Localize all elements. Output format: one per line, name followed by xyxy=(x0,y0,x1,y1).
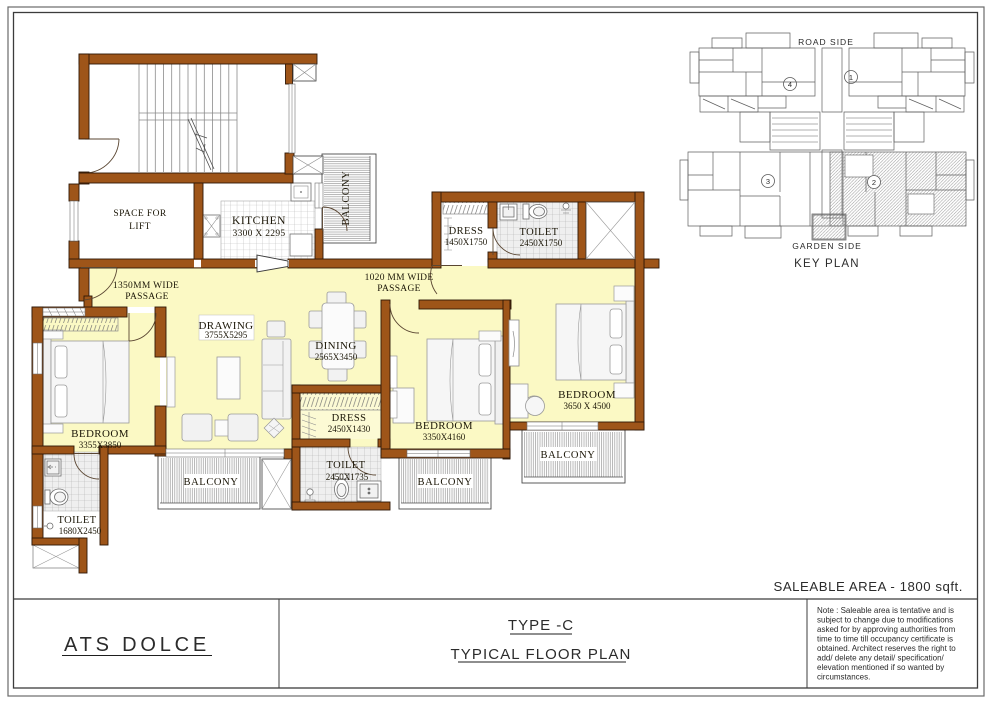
svg-text:2: 2 xyxy=(872,178,876,187)
svg-text:2450X1430: 2450X1430 xyxy=(328,424,371,434)
svg-text:DRESS: DRESS xyxy=(332,413,367,424)
svg-text:SPACE FOR: SPACE FOR xyxy=(113,209,166,219)
svg-text:add/ delete any detail/ specif: add/ delete any detail/ specification/ xyxy=(817,654,945,663)
svg-text:asked for by approving authori: asked for by approving authorities from xyxy=(817,625,956,634)
svg-text:DINING: DINING xyxy=(315,340,357,352)
svg-text:1: 1 xyxy=(849,73,853,82)
svg-text:BEDROOM: BEDROOM xyxy=(558,389,616,401)
svg-text:2450X1735: 2450X1735 xyxy=(326,472,369,482)
svg-text:1450X1750: 1450X1750 xyxy=(445,237,488,247)
svg-text:elevation mentioned if so want: elevation mentioned if so wanted by xyxy=(817,663,944,672)
svg-text:KITCHEN: KITCHEN xyxy=(232,215,286,227)
svg-text:3355X3850: 3355X3850 xyxy=(79,440,122,450)
svg-text:3755X5295: 3755X5295 xyxy=(205,330,248,340)
svg-text:obtained. Architect reserves t: obtained. Architect reserves the right t… xyxy=(817,644,956,653)
svg-text:1020 MM WIDE: 1020 MM WIDE xyxy=(365,273,434,283)
svg-text:GARDEN SIDE: GARDEN SIDE xyxy=(792,241,862,251)
svg-text:ROAD SIDE: ROAD SIDE xyxy=(798,37,854,47)
svg-text:ATS DOLCE: ATS DOLCE xyxy=(64,634,210,656)
svg-text:subject to change due to modif: subject to change due to modifications xyxy=(817,616,953,625)
svg-text:PASSAGE: PASSAGE xyxy=(125,292,168,302)
svg-text:3300 X 2295: 3300 X 2295 xyxy=(233,229,286,239)
svg-text:BALCONY: BALCONY xyxy=(184,477,239,488)
svg-text:SALEABLE AREA - 1800 sqft.: SALEABLE AREA - 1800 sqft. xyxy=(773,579,963,594)
svg-text:TOILET: TOILET xyxy=(327,460,366,471)
svg-text:2450X1750: 2450X1750 xyxy=(520,238,563,248)
svg-text:LIFT: LIFT xyxy=(129,222,151,232)
svg-text:BALCONY: BALCONY xyxy=(541,450,596,461)
svg-text:3650 X 4500: 3650 X 4500 xyxy=(564,401,611,411)
svg-text:TYPICAL FLOOR PLAN: TYPICAL FLOOR PLAN xyxy=(451,646,632,663)
svg-text:3: 3 xyxy=(766,177,770,186)
svg-text:BEDROOM: BEDROOM xyxy=(71,428,129,440)
svg-text:DRESS: DRESS xyxy=(449,226,484,237)
svg-text:TYPE -C: TYPE -C xyxy=(508,617,574,634)
svg-text:circumstances.: circumstances. xyxy=(817,673,870,682)
svg-text:TOILET: TOILET xyxy=(58,515,97,526)
svg-text:3350X4160: 3350X4160 xyxy=(423,432,466,442)
svg-text:TOILET: TOILET xyxy=(520,227,559,238)
svg-text:PASSAGE: PASSAGE xyxy=(377,284,420,294)
svg-text:1350MM WIDE: 1350MM WIDE xyxy=(113,281,179,291)
svg-text:Note : Saleable area is tentat: Note : Saleable area is tentative and is xyxy=(817,606,954,615)
svg-text:BEDROOM: BEDROOM xyxy=(415,420,473,432)
svg-text:KEY PLAN: KEY PLAN xyxy=(794,258,860,270)
svg-text:2565X3450: 2565X3450 xyxy=(315,352,358,362)
svg-text:time to time till occupancy ce: time to time till occupancy certificate … xyxy=(817,635,953,644)
svg-text:4: 4 xyxy=(788,80,792,89)
svg-text:1680X2450: 1680X2450 xyxy=(59,526,102,536)
svg-text:BALCONY: BALCONY xyxy=(418,477,473,488)
